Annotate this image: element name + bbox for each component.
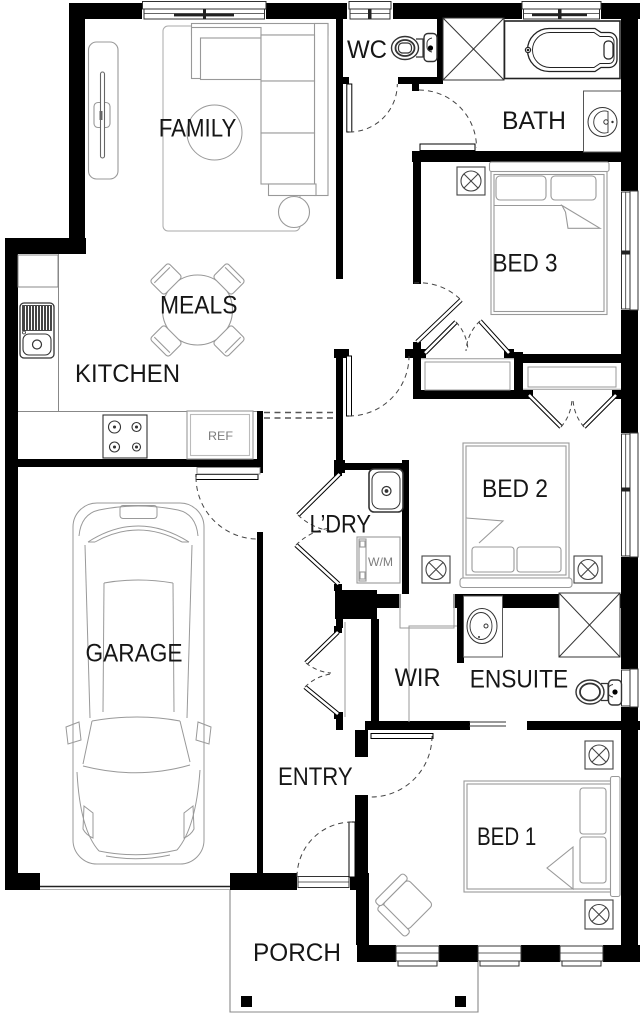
svg-text:GARAGE: GARAGE (86, 639, 183, 667)
svg-text:L’DRY: L’DRY (310, 510, 372, 538)
svg-text:REF: REF (208, 429, 233, 443)
svg-text:PORCH: PORCH (253, 939, 341, 967)
svg-text:BED 3: BED 3 (493, 249, 558, 277)
svg-text:BATH: BATH (502, 107, 566, 135)
svg-text:MEALS: MEALS (160, 292, 238, 320)
svg-text:WC: WC (347, 36, 387, 64)
svg-text:BED 1: BED 1 (477, 823, 536, 851)
svg-text:BED 2: BED 2 (482, 475, 548, 503)
svg-text:FAMILY: FAMILY (159, 114, 237, 142)
svg-text:WIR: WIR (395, 664, 441, 692)
svg-text:ENSUITE: ENSUITE (470, 666, 568, 694)
svg-text:KITCHEN: KITCHEN (75, 360, 180, 388)
svg-text:ENTRY: ENTRY (278, 763, 353, 791)
svg-text:W/M: W/M (368, 555, 393, 569)
